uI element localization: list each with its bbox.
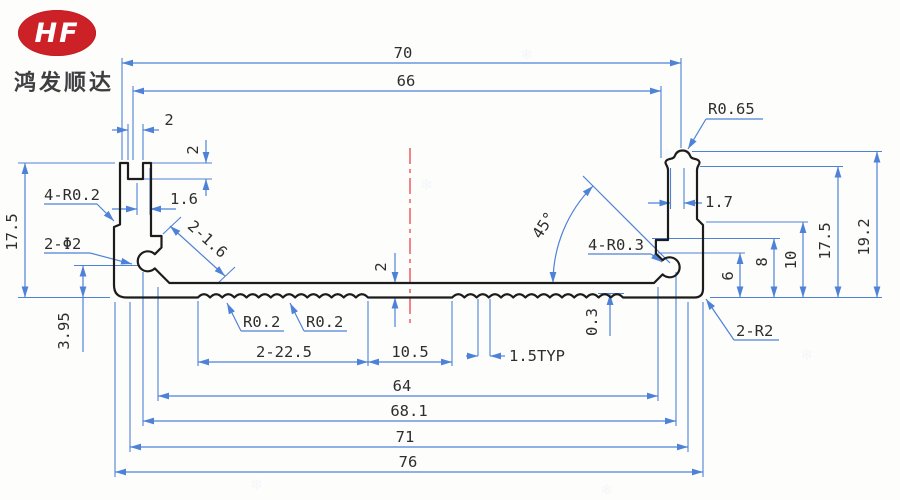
dim-left-height: 17.5 [3, 213, 21, 250]
dim-right-wall-thickness: 1.7 [705, 193, 733, 211]
dim-groove-radius: 4-R0.3 [588, 236, 644, 254]
dim-right-height: 17.5 [816, 222, 834, 259]
dim-height-8: 8 [753, 257, 771, 266]
dim-top-inner-width: 66 [397, 72, 416, 90]
dim-floor-thickness: 2 [372, 262, 390, 271]
dim-center-gap: 10.5 [391, 343, 428, 361]
profile-drawing: ❄ ❄ ❄ ❄ ❄ ❄ [0, 0, 900, 500]
dim-width-68-1: 68.1 [390, 402, 427, 420]
svg-text:❄: ❄ [600, 481, 613, 499]
dim-serration-radius-1: R0.2 [243, 313, 280, 331]
dimension-lines [25, 63, 877, 472]
dim-slot-width: 2 [164, 111, 173, 129]
dim-width-76: 76 [399, 453, 418, 471]
dim-chamfer-width: 2-1.6 [184, 217, 231, 262]
dim-top-width: 70 [394, 44, 413, 62]
dim-total-height: 19.2 [855, 218, 873, 255]
svg-text:❄: ❄ [800, 346, 813, 364]
dim-screw-holes: 2-Φ2 [44, 235, 81, 253]
dim-inner-width: 64 [393, 377, 412, 395]
dim-left-corner-radius: 4-R0.2 [44, 186, 100, 204]
dim-serration-span: 2-22.5 [256, 343, 312, 361]
dim-hole-center-height: 3.95 [55, 312, 73, 349]
svg-text:❄: ❄ [520, 46, 533, 64]
dim-rib-tip-radius: R0.65 [708, 100, 755, 118]
dim-slot-depth: 2 [184, 145, 202, 154]
dim-groove-angle: 45° [529, 209, 559, 242]
svg-text:❄: ❄ [420, 176, 433, 194]
svg-text:❄: ❄ [250, 476, 263, 494]
dim-bottom-corner-radius: 2-R2 [736, 322, 773, 340]
dim-left-wall-thickness: 1.6 [170, 190, 198, 208]
dim-height-10: 10 [782, 251, 800, 270]
dim-height-6: 6 [719, 271, 737, 280]
dim-serration-pitch: 1.5TYP [509, 347, 565, 365]
dim-width-71: 71 [396, 428, 415, 446]
dim-serration-radius-2: R0.2 [306, 313, 343, 331]
dim-serration-depth: 0.3 [583, 308, 601, 336]
